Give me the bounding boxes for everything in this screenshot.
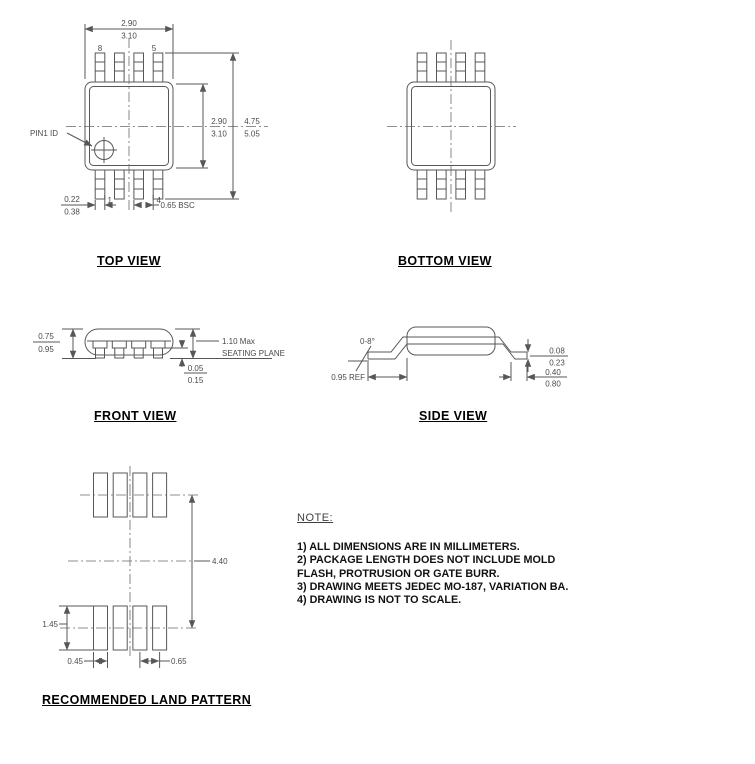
dim-land-span-label: 4.40	[212, 557, 228, 566]
dim-front-lead: 0.75 0.95	[33, 329, 96, 359]
side-view-lead	[368, 337, 527, 359]
dim-lead-width-max: 0.38	[64, 208, 80, 217]
dim-front-standoff: 0.05 0.15	[163, 340, 208, 385]
dim-lead-ref: 0.95 REF	[331, 358, 407, 382]
bottom-view-drawing	[387, 40, 516, 212]
dim-land-pad-width-label: 0.45	[67, 657, 83, 666]
note-line: FLASH, PROTRUSION OR GATE BURR.	[297, 568, 597, 581]
dim-body-height-min: 2.90	[211, 117, 227, 126]
dim-front-standoff-max: 0.15	[188, 376, 204, 385]
dim-front-height-label: 1.10 Max	[222, 337, 255, 346]
note-line: 4) DRAWING IS NOT TO SCALE.	[297, 594, 597, 607]
dim-overall-min: 4.75	[244, 117, 260, 126]
dim-land-span: 4.40	[192, 495, 228, 628]
note-block: NOTE: 1) ALL DIMENSIONS ARE IN MILLIMETE…	[297, 512, 597, 607]
land-pattern-title: RECOMMENDED LAND PATTERN	[42, 693, 251, 707]
dim-overall-max: 5.05	[244, 130, 260, 139]
bottom-view-title: BOTTOM VIEW	[398, 254, 492, 268]
dim-foot-length-min: 0.40	[545, 368, 561, 377]
dim-top-width-min: 2.90	[121, 19, 137, 28]
pin8-label: 8	[98, 44, 103, 53]
top-view-drawing: PIN1 ID 8 5 1 4 2.90 3.10 2.90 3.10 4.75	[30, 19, 268, 217]
note-line: 2) PACKAGE LENGTH DOES NOT INCLUDE MOLD	[297, 554, 597, 567]
dim-lead-thickness-min: 0.08	[549, 347, 565, 356]
dim-lead-thickness-max: 0.23	[549, 359, 565, 368]
side-view-title: SIDE VIEW	[419, 409, 487, 423]
top-view-title: TOP VIEW	[97, 254, 161, 268]
dim-land-pitch-label: 0.65	[171, 657, 187, 666]
dim-lead-ref-label: 0.95 REF	[331, 373, 365, 382]
seating-plane-label: SEATING PLANE	[222, 349, 285, 358]
dim-top-width-max: 3.10	[121, 32, 137, 41]
front-view-body	[85, 329, 173, 355]
drawing-linework: PIN1 ID 8 5 1 4 2.90 3.10 2.90 3.10 4.75	[0, 0, 755, 764]
front-view-drawing: 0.75 0.95 1.10 Max SEATING PLANE 0.05 0.…	[33, 329, 285, 385]
package-outline-drawing: PIN1 ID 8 5 1 4 2.90 3.10 2.90 3.10 4.75	[0, 0, 755, 764]
dim-lead-angle-label: 0-8°	[360, 337, 375, 346]
side-view-body	[407, 327, 495, 355]
pin1-id-label: PIN1 ID	[30, 129, 58, 138]
note-lines: 1) ALL DIMENSIONS ARE IN MILLIMETERS. 2)…	[297, 541, 597, 607]
note-title: NOTE:	[297, 512, 597, 524]
dim-land-pad-width: 0.45	[67, 652, 107, 668]
dim-land-pad-height-label: 1.45	[42, 620, 58, 629]
dim-lead-width-min: 0.22	[64, 195, 80, 204]
dim-lead-angle: 0-8°	[348, 337, 375, 371]
note-line: 1) ALL DIMENSIONS ARE IN MILLIMETERS.	[297, 541, 597, 554]
pin1-id-marker	[67, 133, 117, 163]
dim-foot-length-max: 0.80	[545, 380, 561, 389]
dim-body-height-max: 3.10	[211, 130, 227, 139]
dim-pitch-label: 0.65 BSC	[161, 201, 195, 210]
dim-body-height: 2.90 3.10	[176, 84, 227, 168]
note-line: 3) DRAWING MEETS JEDEC MO-187, VARIATION…	[297, 581, 597, 594]
pin5-label: 5	[152, 44, 157, 53]
dim-front-lead-min: 0.75	[38, 332, 54, 341]
dim-front-standoff-min: 0.05	[188, 364, 204, 373]
dim-land-pitch: 0.65	[140, 652, 187, 668]
pin1-label: 1	[108, 196, 113, 205]
dim-front-lead-max: 0.95	[38, 345, 54, 354]
land-pattern-drawing: 4.40 1.45 0.45 0.65	[42, 466, 228, 668]
front-view-title: FRONT VIEW	[94, 409, 176, 423]
seating-plane: SEATING PLANE	[170, 349, 285, 359]
dim-overall-height: 4.75 5.05	[165, 53, 260, 199]
side-view-drawing: 0-8° 0.95 REF 0.08 0.23 0.40 0.80	[331, 327, 568, 389]
